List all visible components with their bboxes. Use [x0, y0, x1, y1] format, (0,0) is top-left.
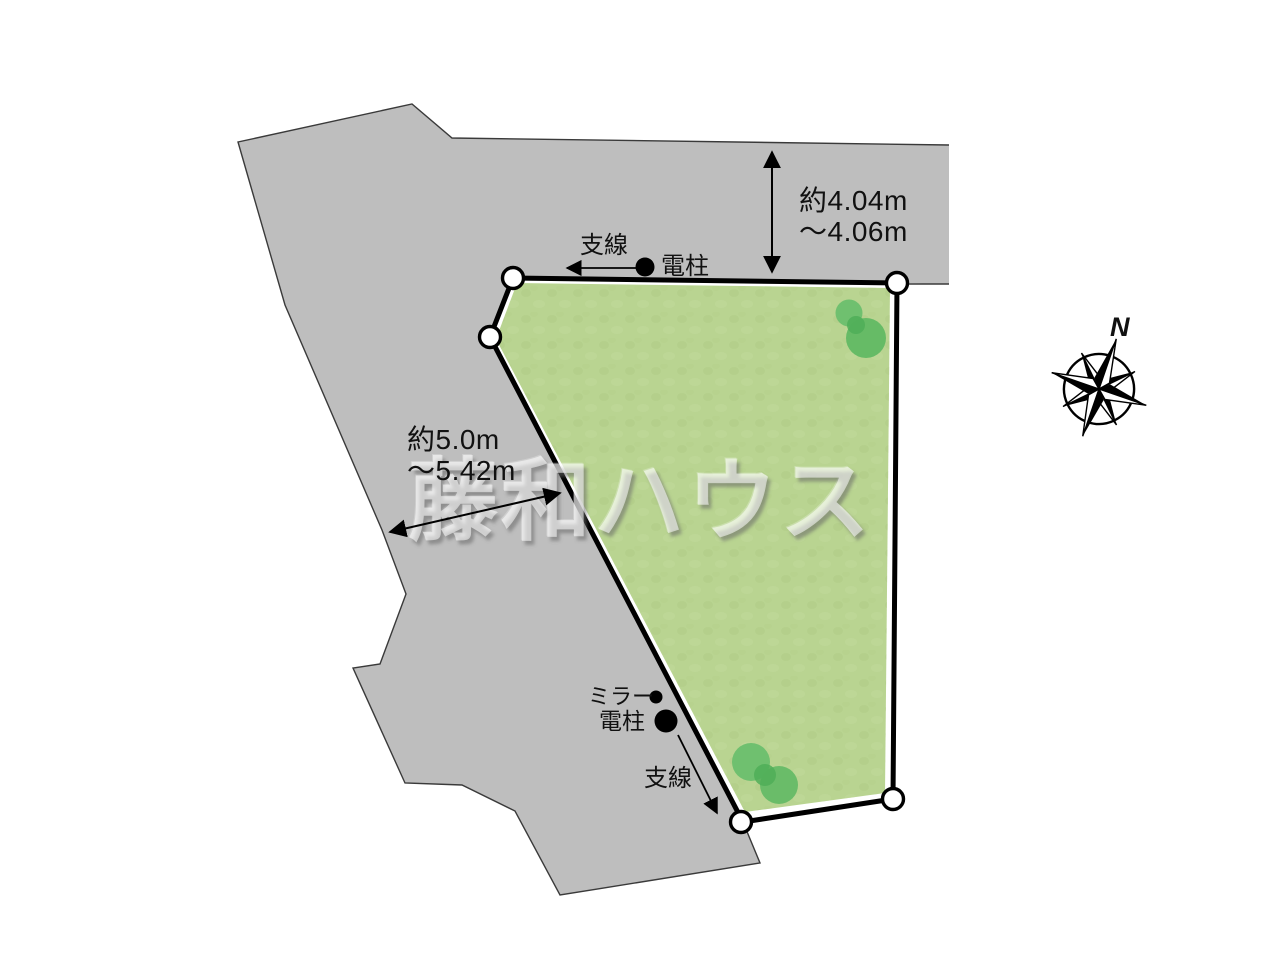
utility-pole-label-top: 電柱: [661, 254, 709, 281]
dimension-north-line2: 〜4.06m: [799, 216, 908, 247]
corner-markers: [480, 268, 908, 833]
utility-pole-dot-bottom: [655, 710, 678, 733]
dimension-west-line2: 〜5.42m: [407, 455, 516, 486]
corner-marker: [503, 268, 524, 289]
corner-marker: [480, 327, 501, 348]
dimension-north-line1: 約4.04m: [799, 185, 908, 216]
guy-wire-label-bottom: 支線: [644, 766, 692, 793]
utility-pole-dot-top: [636, 258, 655, 277]
dimension-north: 約4.04m 〜4.06m: [799, 185, 908, 248]
dimension-arrow-west: [390, 493, 560, 532]
mirror-label: ミラー: [588, 685, 654, 710]
corner-marker: [883, 789, 904, 810]
utility-pole-label-bottom: 電柱: [599, 709, 645, 735]
site-plan-annotations: [0, 0, 1280, 960]
dimension-west-line1: 約5.0m: [407, 424, 516, 455]
compass-rose-icon: [1027, 317, 1171, 461]
plot-diagram: 藤和ハウス: [0, 0, 1280, 960]
compass-north-label: N: [1110, 312, 1130, 342]
dimension-west: 約5.0m 〜5.42m: [407, 424, 516, 487]
corner-marker: [887, 273, 908, 294]
guy-wire-label-top: 支線: [580, 233, 628, 260]
corner-marker: [731, 812, 752, 833]
